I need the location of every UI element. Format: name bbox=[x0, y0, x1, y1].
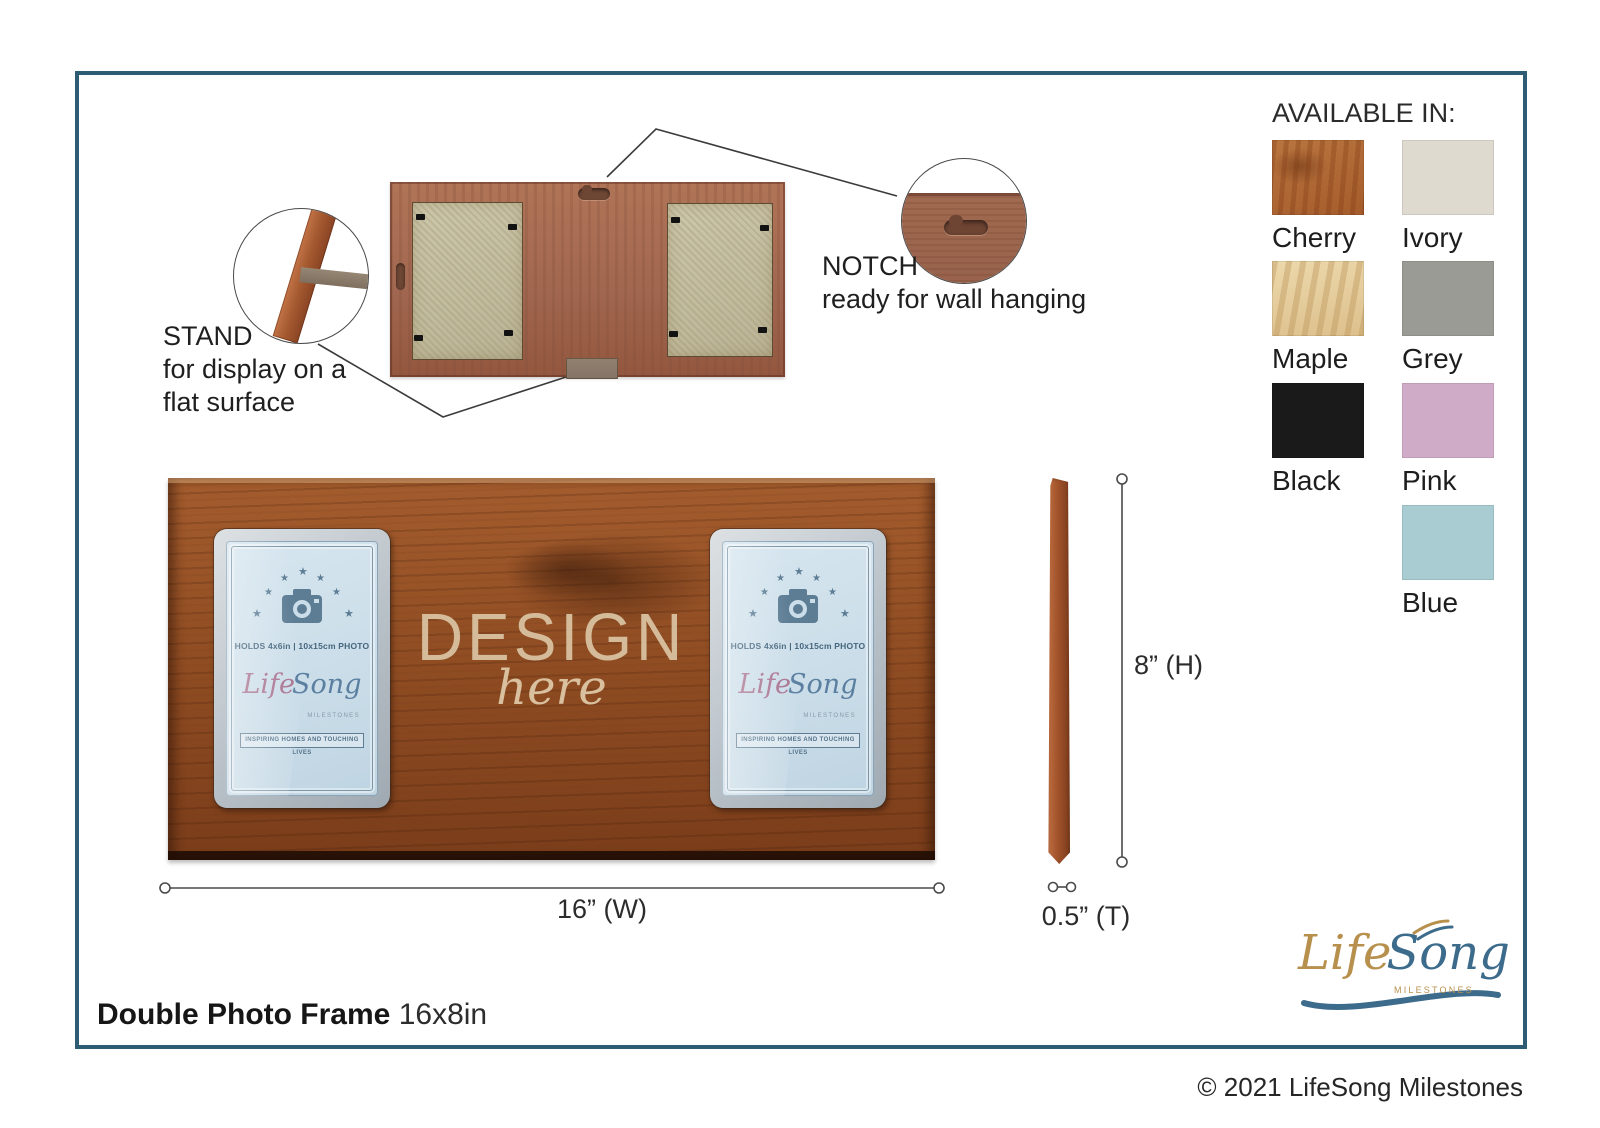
color-swatch-maple bbox=[1272, 261, 1364, 336]
width-dim-endpoint-right bbox=[934, 883, 944, 893]
holds-photo-text: HOLDS 4x6in | 10x15cm PHOTO bbox=[226, 641, 378, 651]
height-dim-endpoint-top bbox=[1117, 474, 1127, 484]
logo-life-text: Life bbox=[1298, 925, 1391, 981]
height-dimension-label: 8” (H) bbox=[1134, 650, 1203, 681]
width-dim-endpoint-left bbox=[160, 883, 170, 893]
svg-text:★: ★ bbox=[840, 608, 850, 620]
card-brand: LifeSong bbox=[226, 669, 378, 700]
height-dim-endpoint-bottom bbox=[1117, 857, 1127, 867]
board-clip bbox=[414, 335, 423, 341]
svg-text:★: ★ bbox=[776, 573, 785, 584]
svg-text:★: ★ bbox=[316, 573, 325, 584]
svg-text:★: ★ bbox=[252, 608, 262, 620]
stand-annotation-title: STAND bbox=[163, 320, 346, 353]
card-brand-milestones: MILESTONES bbox=[307, 713, 360, 719]
color-swatch-label-ivory: Ivory bbox=[1402, 222, 1463, 254]
svg-text:★: ★ bbox=[332, 587, 341, 598]
board-clip bbox=[760, 225, 769, 231]
frame-front-view: ★ ★ ★ ★ ★ ★ ★ HOLDS 4x6in | 10x15cm PHOT… bbox=[168, 478, 935, 860]
side-slot bbox=[396, 263, 405, 290]
holds-photo-text: HOLDS 4x6in | 10x15cm PHOTO bbox=[722, 641, 874, 651]
card-banner-text: INSPIRING HOMES AND TOUCHING LIVES bbox=[240, 733, 364, 748]
hanging-notch bbox=[578, 188, 610, 200]
page-title: Double Photo Frame 16x8in bbox=[97, 998, 487, 1032]
camera-stars-icon: ★ ★ ★ ★ ★ ★ ★ bbox=[742, 559, 854, 637]
stand-annotation: STAND for display on a flat surface bbox=[163, 320, 346, 419]
available-in-heading: AVAILABLE IN: bbox=[1272, 98, 1456, 129]
board-clip bbox=[416, 214, 425, 220]
stand-annotation-line1: for display on a bbox=[163, 353, 346, 386]
svg-text:★: ★ bbox=[264, 587, 273, 598]
color-swatch-pink bbox=[1402, 383, 1494, 458]
logo-milestones-text: MILESTONES bbox=[1394, 985, 1474, 995]
svg-text:★: ★ bbox=[344, 608, 354, 620]
camera-stars-icon: ★ ★ ★ ★ ★ ★ ★ bbox=[246, 559, 358, 637]
card-brand-milestones: MILESTONES bbox=[803, 713, 856, 719]
notch-annotation: NOTCH ready for wall hanging bbox=[822, 250, 1086, 316]
stand-annotation-line2: flat surface bbox=[163, 386, 346, 419]
card-brand-song: Song bbox=[292, 669, 361, 700]
board-clip bbox=[671, 217, 680, 223]
card-banner-text: INSPIRING HOMES AND TOUCHING LIVES bbox=[736, 733, 860, 748]
logo-script: LifeSong bbox=[1298, 925, 1510, 981]
thickness-dim-endpoint-right bbox=[1067, 883, 1076, 892]
notch-annotation-title: NOTCH bbox=[822, 250, 1086, 283]
lifesong-logo: LifeSong MILESTONES bbox=[1286, 915, 1511, 1025]
backing-board-left bbox=[412, 202, 523, 360]
board-clip bbox=[758, 327, 767, 333]
copyright-text: © 2021 LifeSong Milestones bbox=[0, 1072, 1523, 1103]
notch-zoom-slot bbox=[944, 220, 988, 235]
color-swatch-blue bbox=[1402, 505, 1494, 580]
color-swatch-label-blue: Blue bbox=[1402, 587, 1458, 619]
notch-annotation-subtitle: ready for wall hanging bbox=[822, 283, 1086, 316]
product-name: Double Photo Frame bbox=[97, 998, 390, 1031]
svg-text:★: ★ bbox=[280, 573, 289, 584]
svg-text:★: ★ bbox=[748, 608, 758, 620]
color-swatch-label-black: Black bbox=[1272, 465, 1340, 497]
color-swatch-cherry bbox=[1272, 140, 1364, 215]
color-swatch-label-maple: Maple bbox=[1272, 343, 1348, 375]
stand-clip bbox=[566, 358, 618, 379]
thickness-dim-endpoint-left bbox=[1049, 883, 1058, 892]
color-swatch-ivory bbox=[1402, 140, 1494, 215]
card-brand-life: Life bbox=[739, 669, 792, 700]
svg-text:★: ★ bbox=[812, 573, 821, 584]
color-swatch-label-cherry: Cherry bbox=[1272, 222, 1356, 254]
board-clip bbox=[504, 330, 513, 336]
photo-insert-card: ★ ★ ★ ★ ★ ★ ★ HOLDS 4x6in | 10x15cm PHOT… bbox=[722, 541, 874, 796]
thickness-dimension-label: 0.5” (T) bbox=[1026, 901, 1146, 932]
color-swatch-grey bbox=[1402, 261, 1494, 336]
photo-insert-card: ★ ★ ★ ★ ★ ★ ★ HOLDS 4x6in | 10x15cm PHOT… bbox=[226, 541, 378, 796]
svg-text:★: ★ bbox=[298, 566, 308, 578]
svg-text:★: ★ bbox=[760, 587, 769, 598]
card-brand-song: Song bbox=[788, 669, 857, 700]
color-swatch-label-grey: Grey bbox=[1402, 343, 1463, 375]
photo-insert-left: ★ ★ ★ ★ ★ ★ ★ HOLDS 4x6in | 10x15cm PHOT… bbox=[214, 529, 390, 808]
board-clip bbox=[508, 224, 517, 230]
photo-insert-right: ★ ★ ★ ★ ★ ★ ★ HOLDS 4x6in | 10x15cm PHOT… bbox=[710, 529, 886, 808]
card-brand-life: Life bbox=[243, 669, 296, 700]
card-brand: LifeSong bbox=[722, 669, 874, 700]
color-swatch-black bbox=[1272, 383, 1364, 458]
svg-text:★: ★ bbox=[794, 566, 804, 578]
svg-text:★: ★ bbox=[828, 587, 837, 598]
product-size: 16x8in bbox=[399, 998, 487, 1031]
board-clip bbox=[669, 331, 678, 337]
logo-song-text: Song bbox=[1386, 925, 1509, 981]
frame-back-view bbox=[390, 182, 785, 377]
width-dimension-label: 16” (W) bbox=[502, 894, 702, 925]
color-swatch-label-pink: Pink bbox=[1402, 465, 1456, 497]
backing-board-right bbox=[667, 203, 773, 357]
product-infographic: STAND for display on a flat surface NOTC… bbox=[0, 0, 1600, 1128]
